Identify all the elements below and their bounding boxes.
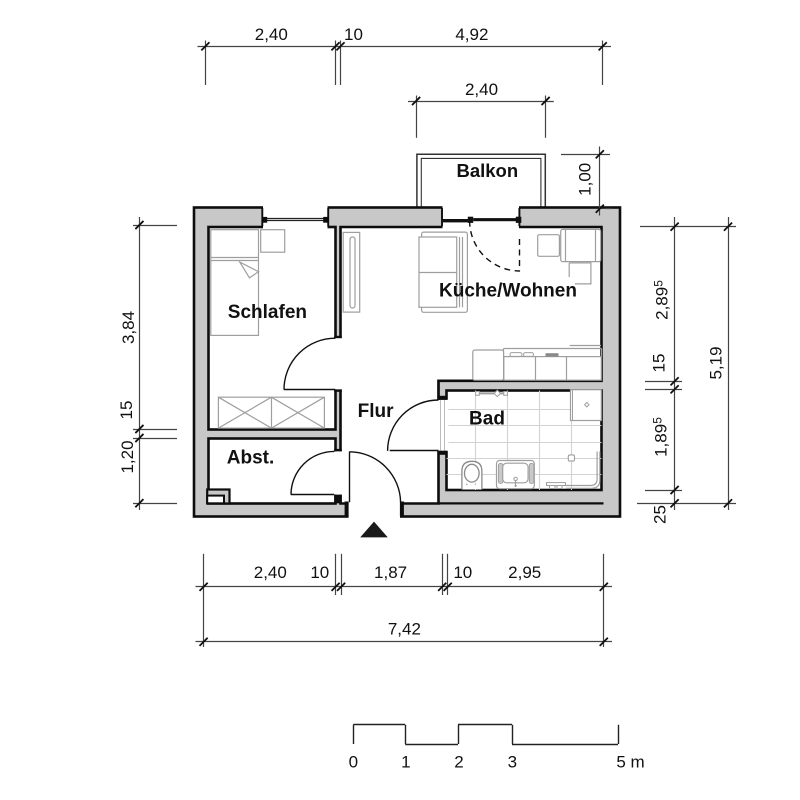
svg-text:Balkon: Balkon [456,160,518,181]
svg-text:2,95: 2,95 [508,563,541,582]
svg-text:Schlafen: Schlafen [228,302,307,323]
svg-text:1,87: 1,87 [374,563,407,582]
svg-text:5,19: 5,19 [706,346,725,379]
svg-text:2,40: 2,40 [255,25,288,44]
svg-text:3: 3 [508,753,517,772]
svg-text:15: 15 [650,354,669,373]
svg-text:0: 0 [349,753,358,772]
svg-text:10: 10 [453,563,472,582]
svg-text:4,92: 4,92 [455,25,488,44]
svg-text:2,40: 2,40 [465,80,498,99]
svg-text:3,84: 3,84 [119,311,138,344]
svg-text:5 m: 5 m [616,753,644,772]
svg-text:7,42: 7,42 [388,619,421,638]
svg-text:25: 25 [650,505,669,524]
svg-text:2: 2 [454,753,463,772]
svg-text:1,20: 1,20 [118,440,137,473]
svg-text:1: 1 [401,753,410,772]
svg-text:Küche/Wohnen: Küche/Wohnen [439,280,577,301]
svg-text:15: 15 [117,401,136,420]
svg-text:1,00: 1,00 [576,163,595,196]
svg-text:Abst.: Abst. [227,448,275,469]
svg-text:2,40: 2,40 [254,563,287,582]
svg-text:10: 10 [344,25,363,44]
svg-text:Flur: Flur [358,401,394,422]
svg-text:10: 10 [310,563,329,582]
svg-text:Bad: Bad [469,409,505,430]
